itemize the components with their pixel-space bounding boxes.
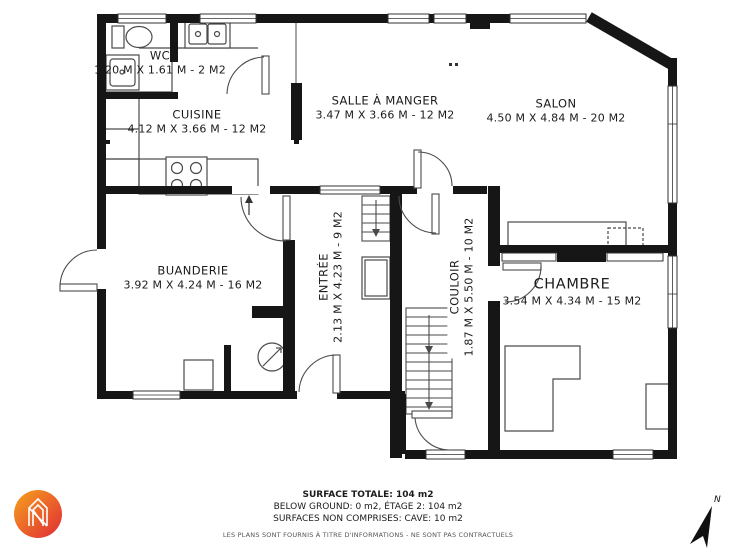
window [434,14,466,23]
room-name: SALLE À MANGER [315,93,454,108]
room-label-chambre: CHAMBRE 3.54 M X 4.34 M - 15 M2 [502,275,641,308]
stair-door [412,411,452,450]
floor-plan-page: WC 1.20 M X 1.61 M - 2 M2 CUISINE 4.12 M… [0,0,736,552]
wc-door [227,56,269,94]
room-name: CUISINE [127,107,266,122]
brand-logo [13,489,63,543]
room-name: BUANDERIE [123,263,262,278]
toilet-icon [112,26,124,48]
room-name: SALON [486,96,625,111]
chamfer-wall [589,17,674,66]
window [613,450,653,459]
interior-glazing [502,253,556,261]
window [426,450,465,459]
window [510,14,586,23]
interior-glazing [607,253,663,261]
north-arrow-icon: N [680,490,730,550]
room-dims: 1.87 M X 5.50 M - 10 M2 [462,217,476,356]
nightstand [646,384,670,429]
front-door [299,355,340,393]
room-dims: 3.92 M X 4.24 M - 16 M2 [123,278,262,292]
room-dims: 4.50 M X 4.84 M - 20 M2 [486,111,625,125]
room-label-couloir: COULOIR 1.87 M X 5.50 M - 10 M2 [447,215,476,358]
walls [97,14,677,459]
window [668,86,677,203]
surface-levels: BELOW GROUND: 0 m2, ÉTAGE 2: 104 m2 [0,501,736,513]
room-name: ENTRÉE [316,211,331,343]
room-label-buanderie: BUANDERIE 3.92 M X 4.24 M - 16 M2 [123,263,262,292]
window [388,14,429,23]
brand-logo-icon [13,489,63,539]
room-name: WC [94,48,226,63]
window [133,391,180,399]
room-label-cuisine: CUISINE 4.12 M X 3.66 M - 12 M2 [127,107,266,136]
window [118,14,166,23]
surface-totale: SURFACE TOTALE: 104 m2 [0,489,736,501]
dining-door [414,150,452,188]
couloir-door [399,194,439,234]
room-label-salon: SALON 4.50 M X 4.84 M - 20 M2 [486,96,625,125]
toilet-bowl-icon [126,27,152,48]
stairs-upper [362,196,390,241]
room-label-wc: WC 1.20 M X 1.61 M - 2 M2 [94,48,226,77]
room-label-salle-a-manger: SALLE À MANGER 3.47 M X 3.66 M - 12 M2 [315,93,454,122]
window [668,256,677,328]
room-dims: 1.20 M X 1.61 M - 2 M2 [94,63,226,77]
room-dims: 2.13 M X 4.23 M - 9 M2 [331,211,345,343]
entree-closet [362,257,390,299]
interior-window [320,186,380,194]
passage-arrow [245,195,253,215]
surface-non-comprises: SURFACES NON COMPRISES: CAVE: 10 m2 [0,513,736,525]
room-dims: 3.47 M X 3.66 M - 12 M2 [315,108,454,122]
stairs-lower [406,308,452,414]
room-label-entree: ENTRÉE 2.13 M X 4.23 M - 9 M2 [316,209,345,345]
exterior-door [60,250,97,291]
room-dims: 4.12 M X 3.66 M - 12 M2 [127,122,266,136]
washing-machine-icon [184,360,213,390]
room-dims: 3.54 M X 4.34 M - 15 M2 [502,294,641,308]
north-compass: N [680,490,730,552]
disclaimer-text: LES PLANS SONT FOURNIS À TITRE D'INFORMA… [0,531,736,540]
window [200,14,256,23]
compass-label: N [714,495,721,505]
room-name: COULOIR [447,217,462,356]
surface-summary: SURFACE TOTALE: 104 m2 BELOW GROUND: 0 m… [0,489,736,540]
bed [505,346,580,431]
room-name: CHAMBRE [502,275,641,294]
